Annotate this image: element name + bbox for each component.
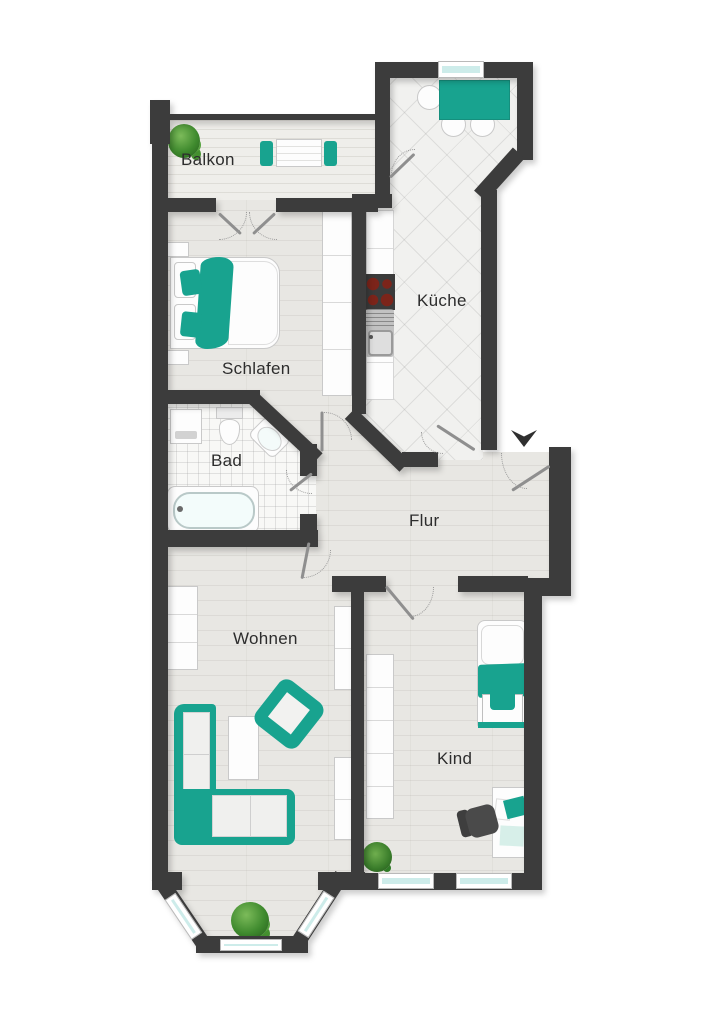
room-label-flur: Flur xyxy=(409,511,439,531)
wall xyxy=(517,62,533,160)
kitchen-window xyxy=(438,61,484,78)
wall xyxy=(152,102,168,878)
wall xyxy=(524,578,542,890)
wall xyxy=(351,586,364,882)
kids-window xyxy=(456,873,512,889)
wall xyxy=(152,390,260,404)
bay-window xyxy=(220,939,282,951)
wall xyxy=(549,447,571,595)
floor-plan: Balkon Schlafen Küche Bad Flur Wohnen Ki… xyxy=(0,0,724,1024)
window-glass xyxy=(442,66,480,73)
window-glass xyxy=(460,878,508,884)
room-label-bad: Bad xyxy=(211,451,242,471)
room-label-kueche: Küche xyxy=(417,291,467,311)
wall xyxy=(481,190,497,450)
room-label-kind: Kind xyxy=(437,749,472,769)
balcony-railing xyxy=(166,114,378,120)
wall xyxy=(150,100,170,144)
room-label-wohnen: Wohnen xyxy=(233,629,298,649)
walls xyxy=(0,0,724,1024)
wall xyxy=(402,452,438,467)
wall xyxy=(375,62,390,208)
wall xyxy=(152,530,318,547)
room-label-balkon: Balkon xyxy=(181,150,235,170)
wall xyxy=(352,206,366,414)
window-glass xyxy=(382,878,430,884)
wall xyxy=(345,408,410,472)
window-glass xyxy=(224,944,278,946)
wall xyxy=(458,576,528,592)
wall xyxy=(345,873,542,890)
kids-window xyxy=(378,873,434,889)
wall xyxy=(166,198,216,212)
room-label-schlafen: Schlafen xyxy=(222,359,291,379)
